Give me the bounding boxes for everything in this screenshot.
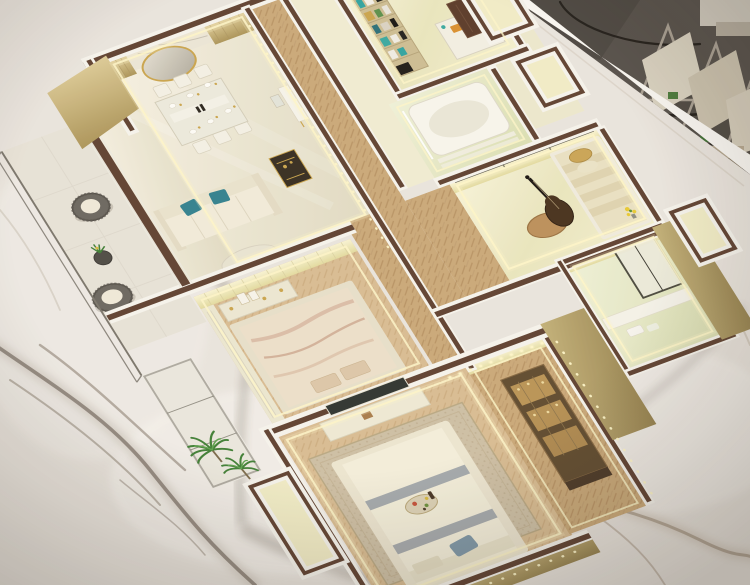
- scene: [0, 0, 750, 585]
- warm-tint: [0, 0, 750, 585]
- photo-of-apartment-scale-model: [0, 0, 750, 585]
